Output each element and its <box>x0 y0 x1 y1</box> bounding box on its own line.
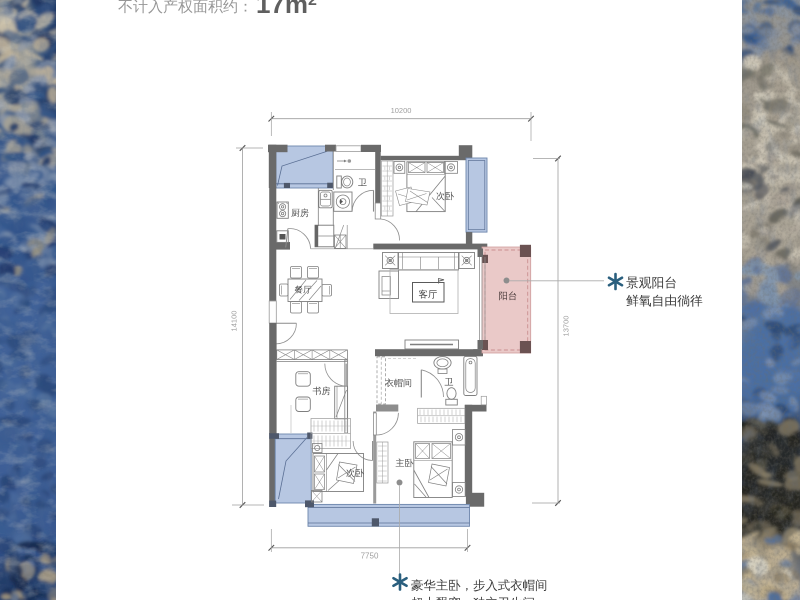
svg-text:13700: 13700 <box>562 316 571 337</box>
svg-text:10200: 10200 <box>391 106 412 115</box>
svg-text:14100: 14100 <box>230 311 239 332</box>
svg-text:17m2: 17m2 <box>256 0 317 19</box>
svg-text:7750: 7750 <box>361 552 379 561</box>
